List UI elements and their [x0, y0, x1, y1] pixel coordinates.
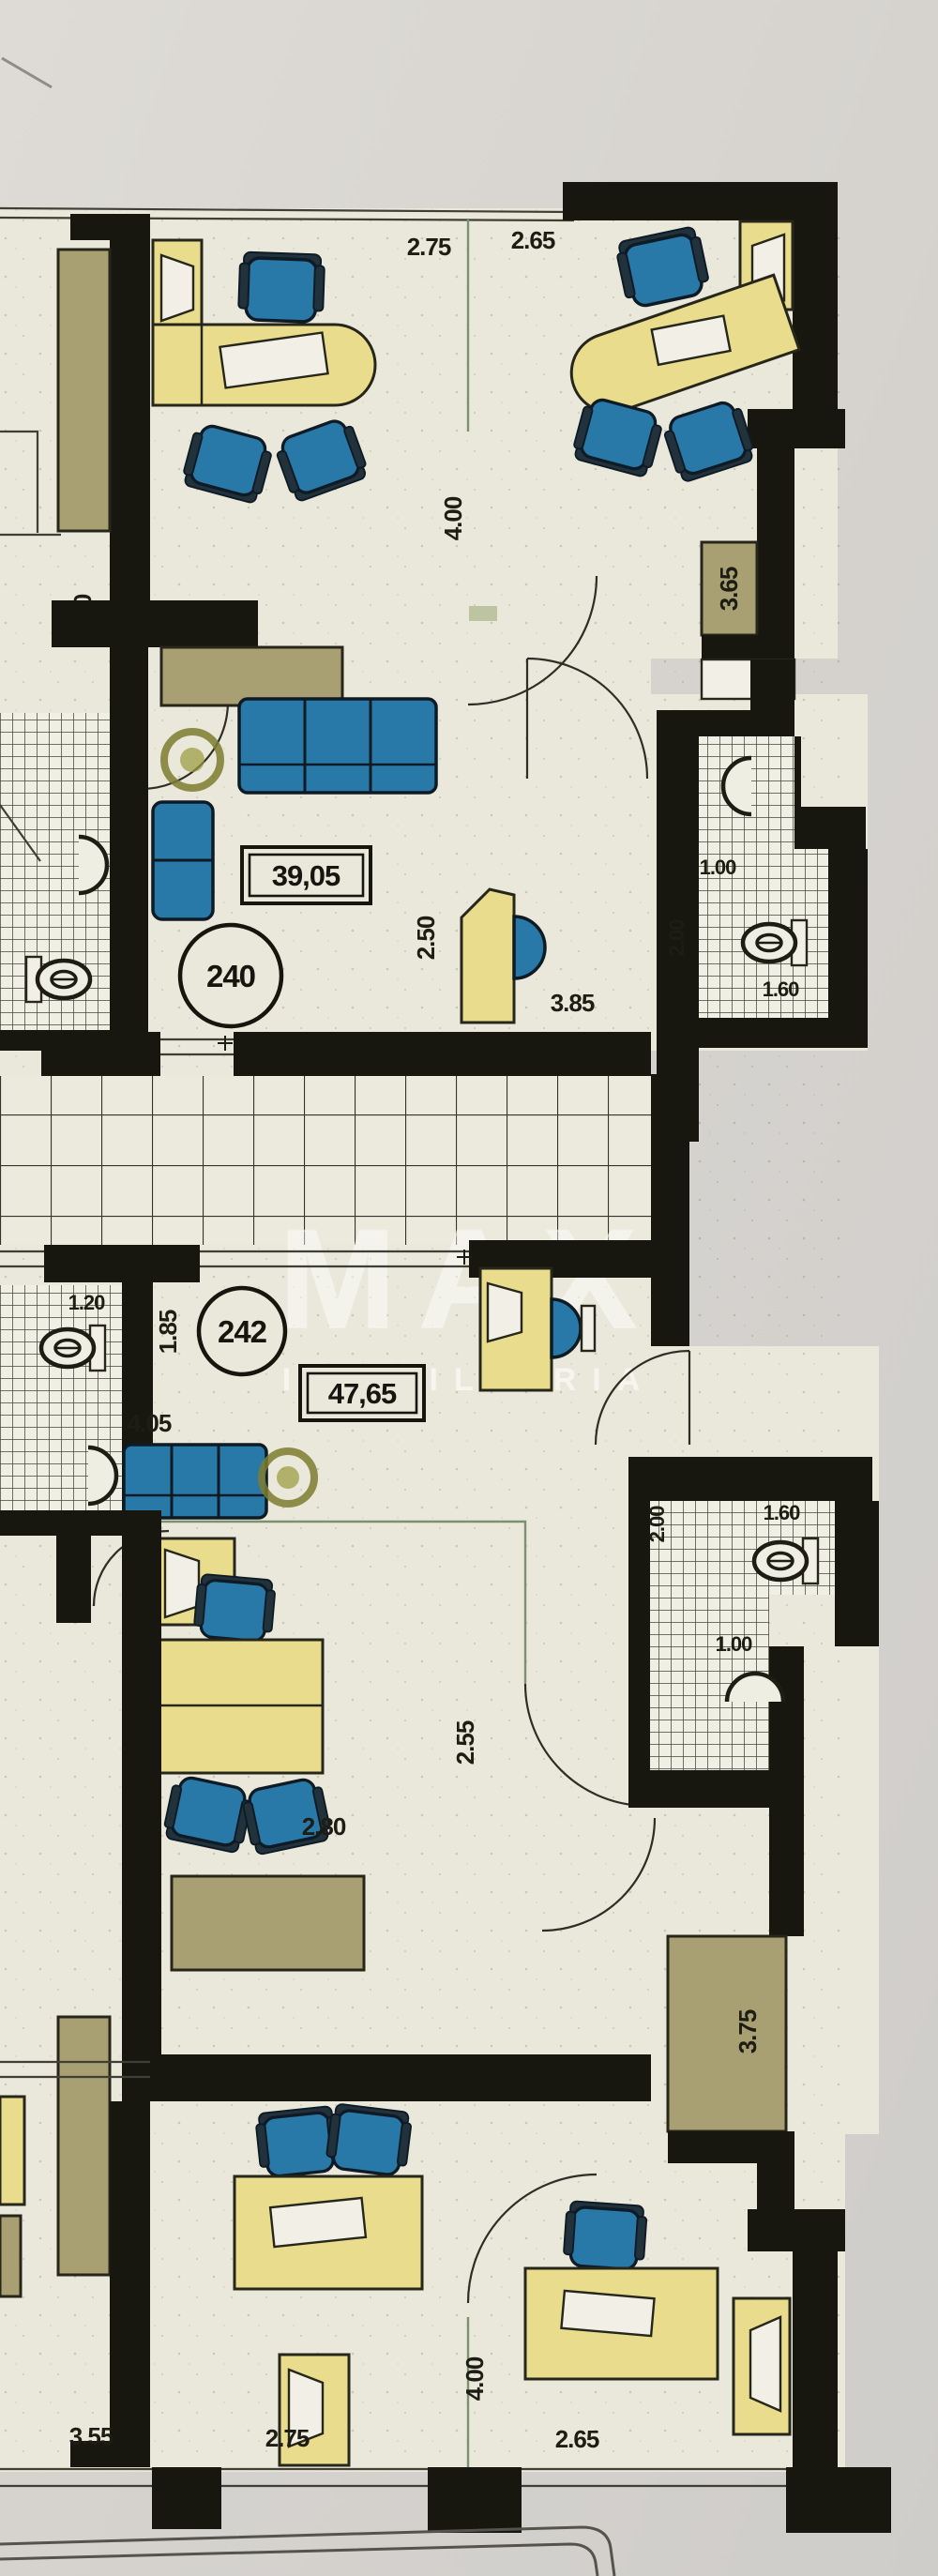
desk-paper	[561, 2291, 654, 2336]
dim-bottom-355: 3.55	[69, 2422, 113, 2450]
watermark-max: MAX	[279, 1200, 658, 1357]
desk-tray	[750, 2317, 780, 2411]
exec-chair-icon	[325, 2103, 413, 2176]
wall-above-closet	[769, 1782, 804, 1936]
dim-top-depth: 4.00	[439, 496, 467, 540]
dim-242-bath-160: 1.60	[764, 1501, 801, 1524]
wall-bath-top	[699, 710, 794, 736]
wall-bath-top	[628, 1457, 872, 1501]
exec-chair-icon	[238, 251, 325, 322]
cabinet-left	[58, 250, 110, 531]
toilet-icon	[743, 920, 807, 965]
wall-bath-thin-right	[794, 736, 801, 811]
sofa-242	[124, 1445, 266, 1518]
wall-right-upper	[793, 182, 838, 417]
desk-tray	[488, 1283, 522, 1341]
wall-left-header	[70, 214, 150, 240]
sideboard-242	[172, 1876, 364, 1970]
room-number-242: 242	[218, 1314, 267, 1349]
dim-240-bath-160: 1.60	[763, 977, 800, 1001]
wall-left-column	[110, 240, 150, 647]
desk-tray	[161, 255, 193, 321]
wall-bath-right	[828, 849, 868, 1018]
wall-bath-right	[110, 647, 148, 1048]
wall-left-column-242	[122, 1510, 161, 2101]
neighbor-furniture	[0, 2216, 21, 2296]
wall-below-closet	[702, 635, 794, 659]
desk-240	[461, 889, 514, 1023]
dim-242-405: 4.05	[128, 1409, 172, 1437]
wall-bath-corner	[794, 807, 866, 849]
dim-242-255: 2.55	[451, 1720, 479, 1765]
wall-pier	[152, 2467, 221, 2529]
dim-240-bath-100: 1.00	[700, 856, 737, 879]
dim-top-right-width: 2.65	[511, 226, 555, 254]
wall-pier	[786, 2467, 891, 2533]
closet-tan	[668, 1936, 786, 2131]
armchair-240	[153, 802, 213, 919]
door-threshold-mark	[469, 606, 497, 621]
dim-bottom-275: 2.75	[265, 2424, 310, 2452]
sofa-240	[239, 699, 436, 793]
dim-bottom-265: 2.65	[555, 2425, 599, 2453]
wall-right-lower	[793, 2251, 838, 2474]
area-box-240: 39,05	[242, 847, 371, 903]
dim-242-120: 1.20	[68, 1291, 106, 1314]
wall-below-bath	[56, 1536, 91, 1623]
wall-pier	[428, 2467, 522, 2533]
dim-242-bath-200: 2.00	[645, 1506, 669, 1543]
wall-bath-bottom	[699, 1018, 868, 1048]
room-242-circle: 242	[199, 1288, 285, 1374]
area-box-242: 47,65	[300, 1366, 424, 1420]
exec-chair-icon	[193, 1574, 276, 1643]
wall-right-notch	[748, 2209, 845, 2251]
room-240-circle: 240	[180, 925, 281, 1026]
dim-242-closet-375: 3.75	[734, 2009, 762, 2053]
area-value-240: 39,05	[272, 859, 340, 892]
wall-right-notch	[748, 409, 845, 448]
wall-left-column	[110, 2101, 150, 2467]
wall-242-bottom	[150, 2054, 651, 2101]
floor-plan-canvas: 3.65 2.75 2.65 4.00 3.50	[0, 0, 938, 2576]
floor-plan-sheet: 3.65 2.75 2.65 4.00 3.50	[0, 0, 938, 2576]
toilet-icon	[754, 1538, 818, 1583]
desk-tray	[165, 1550, 199, 1617]
cabinet-left-lower	[58, 2017, 110, 2275]
toilet-icon	[26, 957, 90, 1002]
wall-stub-right	[750, 659, 794, 710]
dim-top-left-width: 2.75	[407, 233, 451, 261]
dim-240-385: 3.85	[551, 989, 595, 1017]
dim-240-250: 2.50	[412, 916, 440, 960]
dim-240-bath-200: 2.00	[665, 919, 688, 957]
exec-chair-icon	[563, 2201, 647, 2270]
wall-bath-bottom	[628, 1770, 769, 1808]
sideboard	[161, 647, 342, 705]
area-value-242: 47,65	[328, 1377, 397, 1410]
neighbor-furniture	[0, 2097, 24, 2205]
wall-240-bottom	[41, 1032, 651, 1076]
wall-top-right	[563, 182, 833, 220]
wall-bath-right-lower	[769, 1646, 804, 1787]
wall-office-bottom	[52, 600, 258, 647]
toilet-icon	[41, 1326, 105, 1371]
wall-bath-right	[835, 1501, 879, 1646]
chair-pad	[582, 1306, 595, 1351]
dim-bottom-400: 4.00	[461, 2356, 489, 2401]
dim-242-bath-100: 1.00	[716, 1632, 753, 1656]
desk-paper	[270, 2198, 366, 2247]
wall-right-connector	[757, 2131, 794, 2216]
dim-242-280: 2.80	[302, 1812, 346, 1841]
room-number-240: 240	[206, 959, 255, 993]
wall-right-lower	[757, 448, 794, 636]
dim-242-185: 1.85	[154, 1310, 182, 1354]
dim-closet-365: 3.65	[715, 567, 743, 611]
